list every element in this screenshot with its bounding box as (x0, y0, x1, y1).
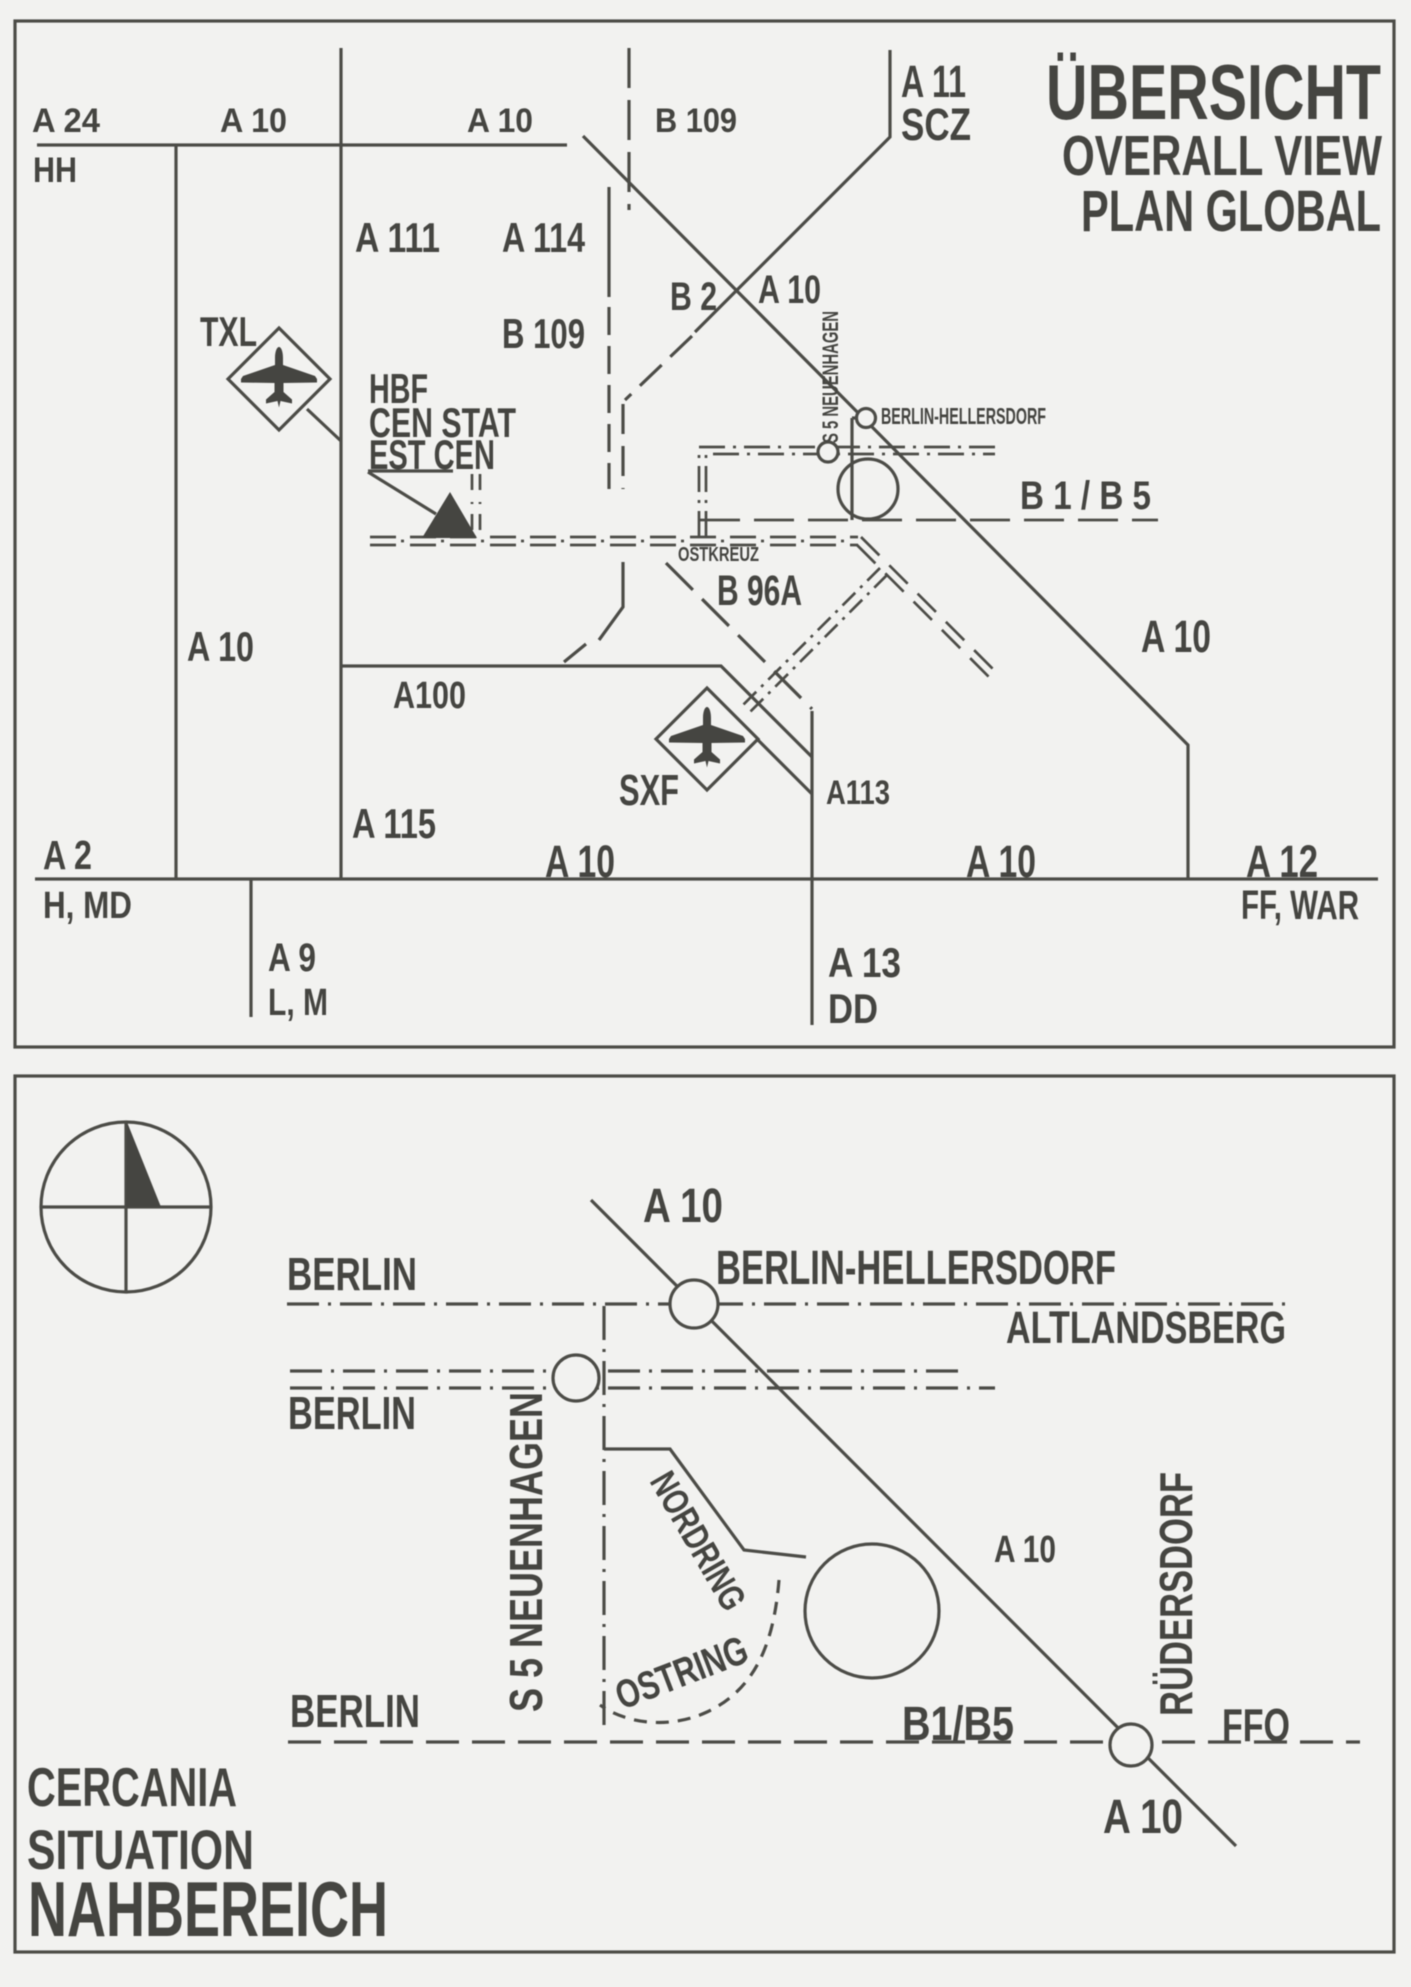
svg-text:SXF: SXF (619, 766, 679, 815)
svg-text:B 96A: B 96A (717, 567, 802, 615)
svg-text:TXL: TXL (200, 308, 257, 355)
svg-text:A 10: A 10 (220, 102, 287, 140)
svg-text:FF, WAR: FF, WAR (1241, 882, 1359, 928)
svg-text:OSTKREUZ: OSTKREUZ (678, 544, 759, 566)
svg-text:A 10: A 10 (467, 102, 533, 140)
svg-text:DD: DD (828, 985, 878, 1032)
svg-text:BERLIN: BERLIN (287, 1248, 417, 1300)
svg-text:A 115: A 115 (352, 800, 436, 847)
svg-text:A 10: A 10 (966, 836, 1036, 887)
svg-text:BERLIN: BERLIN (288, 1387, 416, 1439)
svg-text:CERCANIA: CERCANIA (27, 1756, 237, 1818)
svg-text:A 2: A 2 (43, 832, 92, 878)
svg-text:EST CEN: EST CEN (369, 431, 495, 478)
svg-text:A 13: A 13 (828, 939, 901, 986)
svg-text:BERLIN-HELLERSDORF: BERLIN-HELLERSDORF (716, 1242, 1116, 1295)
svg-text:S 5 NEUENHAGEN: S 5 NEUENHAGEN (818, 311, 843, 443)
svg-text:BERLIN: BERLIN (290, 1685, 420, 1737)
svg-text:HH: HH (33, 151, 77, 190)
svg-text:S 5 NEUENHAGEN: S 5 NEUENHAGEN (500, 1392, 552, 1712)
svg-text:A 114: A 114 (502, 214, 585, 261)
svg-text:A 10: A 10 (758, 268, 821, 312)
svg-text:ÜBERSICHT: ÜBERSICHT (1046, 48, 1381, 136)
svg-text:A113: A113 (826, 774, 890, 812)
svg-text:A 9: A 9 (268, 936, 316, 980)
svg-text:B1/B5: B1/B5 (902, 1698, 1014, 1751)
svg-text:RÜDERSDORF: RÜDERSDORF (1150, 1472, 1202, 1716)
svg-text:B 1 / B 5: B 1 / B 5 (1020, 474, 1151, 518)
svg-text:B 2: B 2 (670, 275, 717, 319)
svg-text:ALTLANDSBERG: ALTLANDSBERG (1006, 1302, 1286, 1353)
svg-text:A 10: A 10 (643, 1180, 723, 1233)
svg-text:B 109: B 109 (502, 310, 585, 357)
svg-text:SCZ: SCZ (901, 99, 971, 150)
svg-text:A 12: A 12 (1246, 836, 1318, 887)
svg-text:FFO: FFO (1222, 1699, 1290, 1751)
svg-text:A 10: A 10 (1103, 1791, 1183, 1844)
svg-text:PLAN GLOBAL: PLAN GLOBAL (1081, 179, 1381, 244)
svg-text:L, M: L, M (268, 982, 328, 1024)
svg-text:A100: A100 (393, 675, 466, 717)
svg-text:A 10: A 10 (187, 623, 254, 670)
svg-text:H, MD: H, MD (43, 885, 132, 927)
svg-text:BERLIN-HELLERSDORF: BERLIN-HELLERSDORF (881, 403, 1046, 429)
svg-text:A 10: A 10 (1141, 611, 1211, 662)
svg-text:NAHBEREICH: NAHBEREICH (28, 1865, 388, 1953)
svg-text:B 109: B 109 (655, 102, 737, 140)
svg-text:A 24: A 24 (32, 102, 100, 140)
svg-text:A 10: A 10 (545, 836, 615, 887)
svg-text:A 10: A 10 (994, 1529, 1056, 1571)
svg-text:A 111: A 111 (355, 214, 440, 261)
